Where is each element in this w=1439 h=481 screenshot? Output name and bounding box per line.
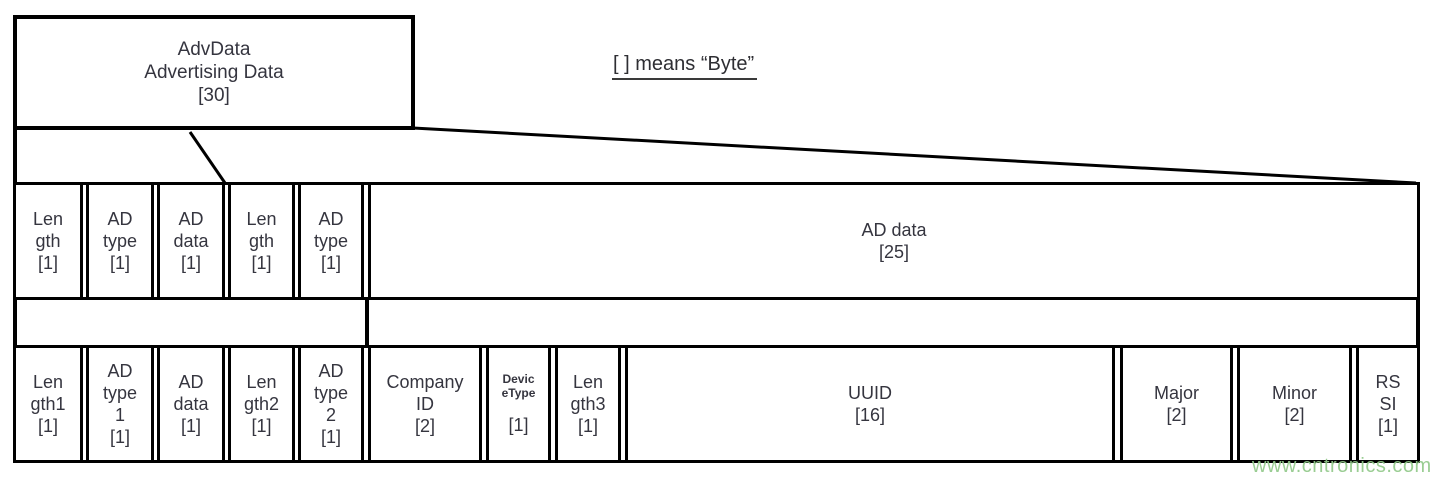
field-major: Major[2] bbox=[1120, 345, 1233, 463]
device-type-size: [1] bbox=[508, 414, 528, 436]
advdata-root-box: AdvDataAdvertising Data[30] bbox=[13, 15, 415, 130]
split-diagonal-line bbox=[190, 132, 225, 183]
field-minor: Minor[2] bbox=[1237, 345, 1352, 463]
field-ad-data: ADdata[1] bbox=[157, 182, 225, 300]
field-ad-type-1: ADtype1[1] bbox=[86, 345, 154, 463]
field-rssi: RSSI[1] bbox=[1356, 345, 1420, 463]
field-length1: Length1[1] bbox=[13, 345, 83, 463]
byte-legend-note: [ ] means “Byte” bbox=[612, 52, 757, 76]
field-length: Length[1] bbox=[228, 182, 295, 300]
field-ad-data-25: AD data[25] bbox=[368, 182, 1420, 300]
band-divider-line bbox=[365, 300, 369, 345]
site-watermark: www.cntronics.com bbox=[1252, 455, 1432, 477]
field-ad-type: ADtype[1] bbox=[86, 182, 154, 300]
field-company-id: CompanyID[2] bbox=[368, 345, 482, 463]
field-uuid: UUID[16] bbox=[625, 345, 1115, 463]
byte-legend-text: [ ] means “Byte” bbox=[612, 53, 757, 80]
row-connector-band bbox=[13, 300, 1420, 345]
expand-diagonal-line bbox=[413, 128, 1416, 183]
field-length3: Length3[1] bbox=[555, 345, 621, 463]
field-ad-data: ADdata[1] bbox=[157, 345, 225, 463]
field-device-type: DeviceType [1] bbox=[486, 345, 551, 463]
ble-advdata-structure-diagram: AdvDataAdvertising Data[30] [ ] means “B… bbox=[0, 0, 1439, 481]
field-length2: Length2[1] bbox=[228, 345, 295, 463]
field-ad-type-2: ADtype2[1] bbox=[298, 345, 364, 463]
device-type-label: DeviceType bbox=[502, 372, 536, 400]
field-length: Length[1] bbox=[13, 182, 83, 300]
field-ad-type: ADtype[1] bbox=[298, 182, 364, 300]
